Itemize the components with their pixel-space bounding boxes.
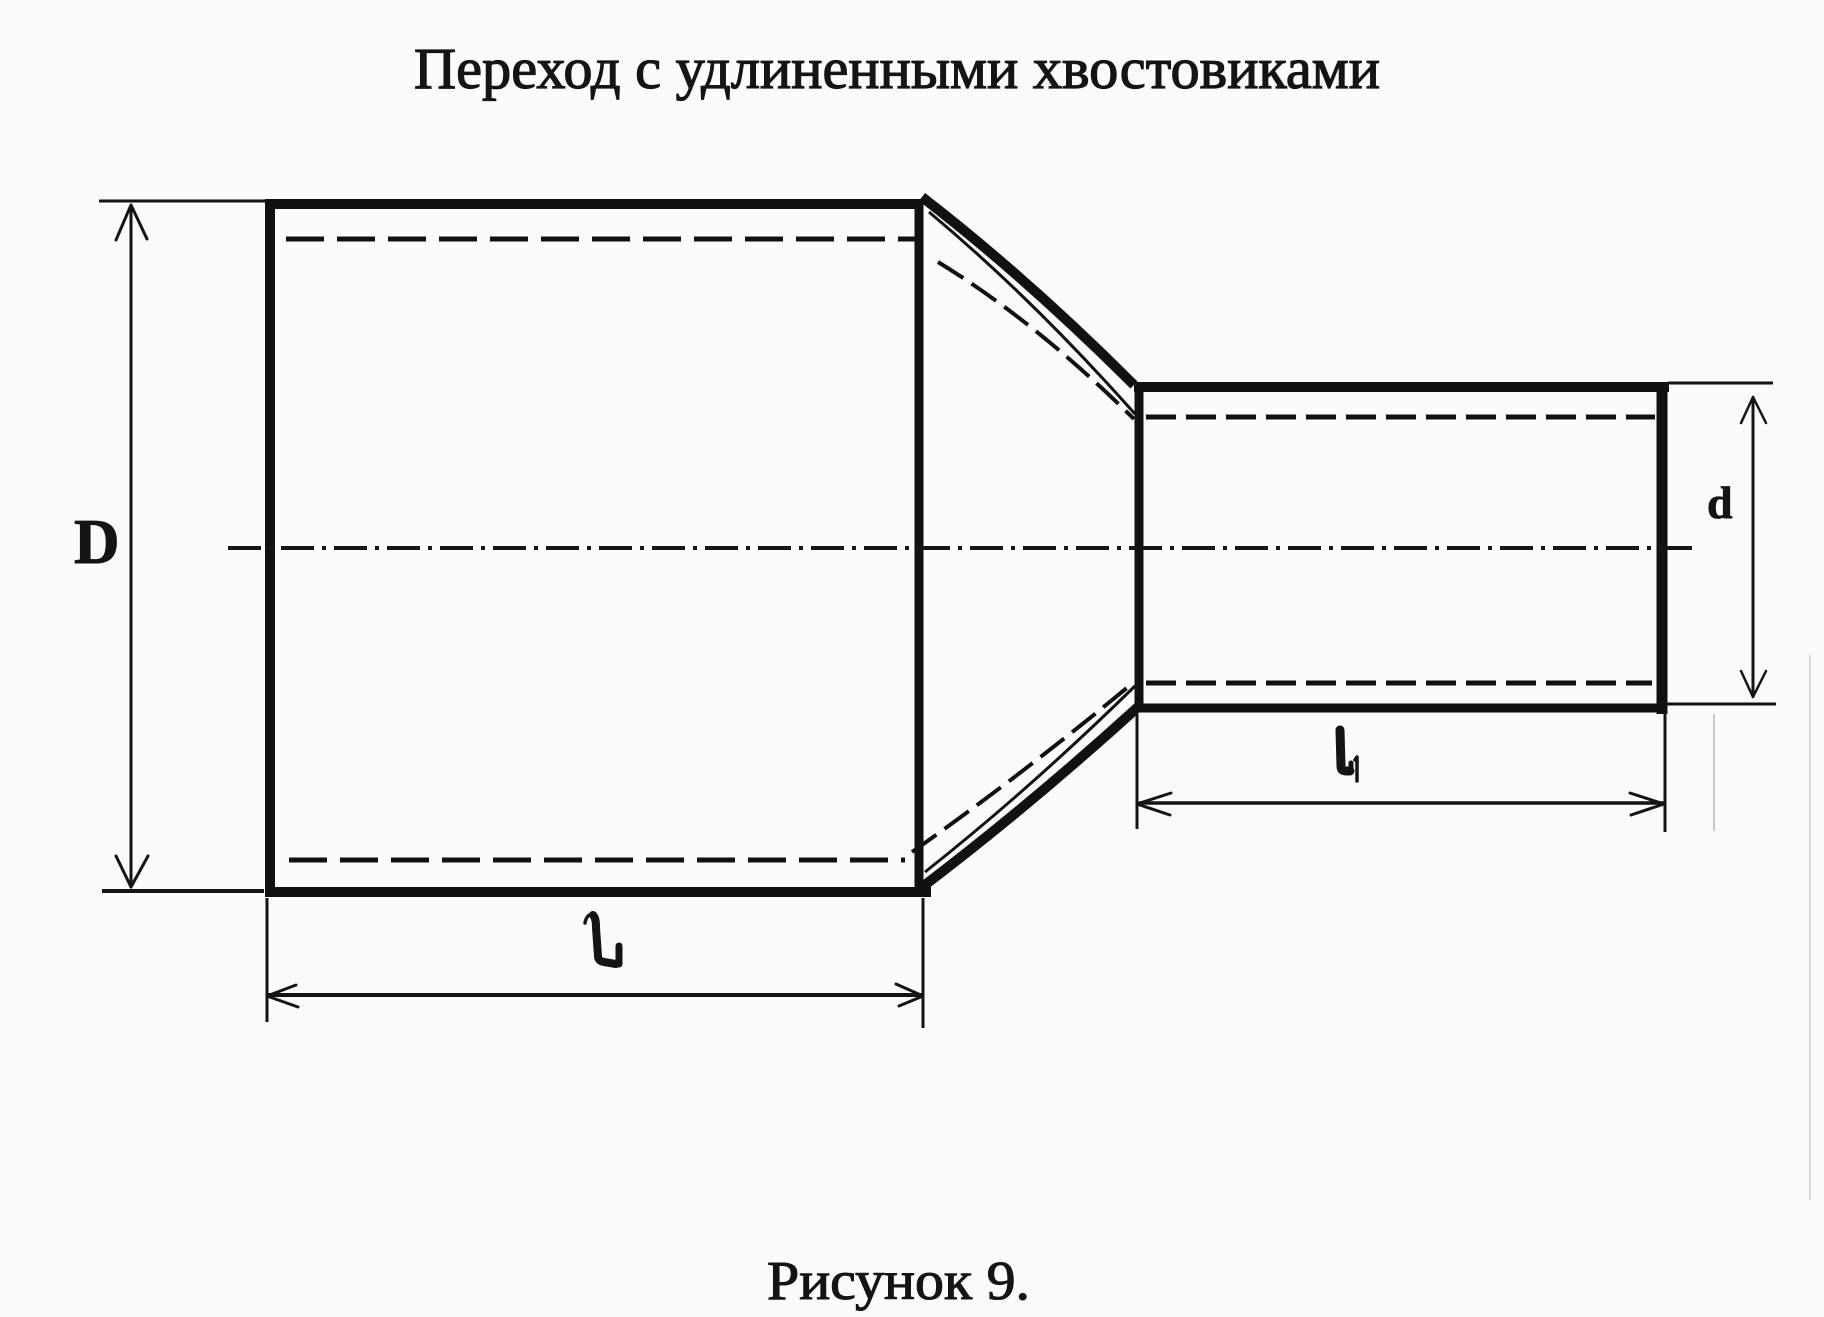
- svg-text:Переход с удлиненными хвостови: Переход с удлиненными хвостовиками: [414, 36, 1380, 101]
- svg-text:Рисунок 9.: Рисунок 9.: [767, 1250, 1030, 1311]
- svg-text:D: D: [74, 507, 120, 577]
- svg-text:d: d: [1707, 477, 1733, 528]
